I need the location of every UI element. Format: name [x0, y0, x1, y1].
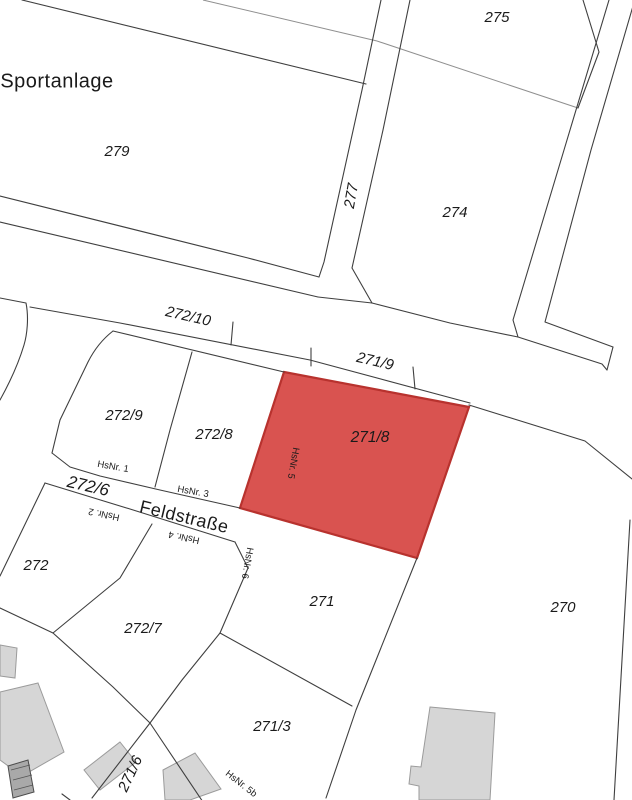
boundary-line: [513, 0, 609, 337]
building: [163, 753, 221, 800]
map-label-272-10: 272/10: [163, 303, 213, 330]
map-label-hsnr-5b: HsNr. 5b: [223, 768, 259, 799]
boundary-line: [62, 794, 70, 800]
building: [409, 707, 495, 800]
map-label-271-8: 271/8: [350, 429, 390, 446]
boundary-line: [220, 633, 352, 706]
boundary-line: [377, 41, 578, 108]
map-label-271-9: 271/9: [354, 349, 396, 374]
buildings-layer: [0, 645, 495, 800]
boundary-line: [155, 352, 192, 487]
strip-272-10-south: [113, 331, 284, 372]
map-label-275: 275: [483, 9, 510, 26]
boundary-line: [614, 520, 630, 800]
road-north-edge: [0, 196, 319, 277]
building: [0, 683, 64, 776]
road-south-edge: [469, 405, 632, 479]
map-label-hsnr-1: HsNr. 1: [96, 459, 129, 475]
boundary-line: [545, 6, 632, 347]
map-label-272-9: 272/9: [104, 407, 143, 424]
boundary-line: [53, 524, 152, 633]
map-label-hsnr-6: HsNr. 6: [239, 546, 255, 579]
boundary-line: [203, 0, 377, 41]
boundary-line-path-277: [319, 0, 381, 277]
map-canvas: Sportanlage279275277274272/10271/9272/92…: [0, 0, 632, 800]
boundary-line: [326, 558, 417, 798]
label-leader-271-9: [413, 367, 415, 389]
map-label-hsnr-2: HsNr. 2: [87, 505, 120, 522]
boundary-line: [352, 268, 372, 303]
map-label-279: 279: [103, 143, 130, 160]
building: [0, 645, 17, 678]
boundary-line: [607, 347, 613, 370]
map-label-hsnr-4: HsNr. 4: [167, 528, 200, 545]
boundary-line-path-277: [352, 0, 410, 268]
street-curve: [52, 331, 113, 453]
street-curve: [0, 298, 27, 400]
cadastral-map: Sportanlage279275277274272/10271/9272/92…: [0, 0, 632, 800]
map-label-271-3: 271/3: [252, 718, 291, 735]
map-label-277: 277: [341, 181, 362, 210]
map-label-272: 272: [22, 557, 49, 574]
map-label-272-8: 272/8: [194, 426, 233, 443]
map-label-274: 274: [441, 204, 467, 221]
road-north-edge: [0, 222, 318, 297]
map-label-270: 270: [549, 599, 576, 616]
map-label-271: 271: [308, 593, 334, 610]
strip-272-10-north: [30, 307, 470, 403]
map-label-sportanlage: Sportanlage: [0, 70, 113, 92]
parcel-271-8-highlight[interactable]: [240, 372, 469, 558]
label-leader-272-10: [231, 322, 233, 345]
map-label-272-7: 272/7: [123, 620, 162, 637]
